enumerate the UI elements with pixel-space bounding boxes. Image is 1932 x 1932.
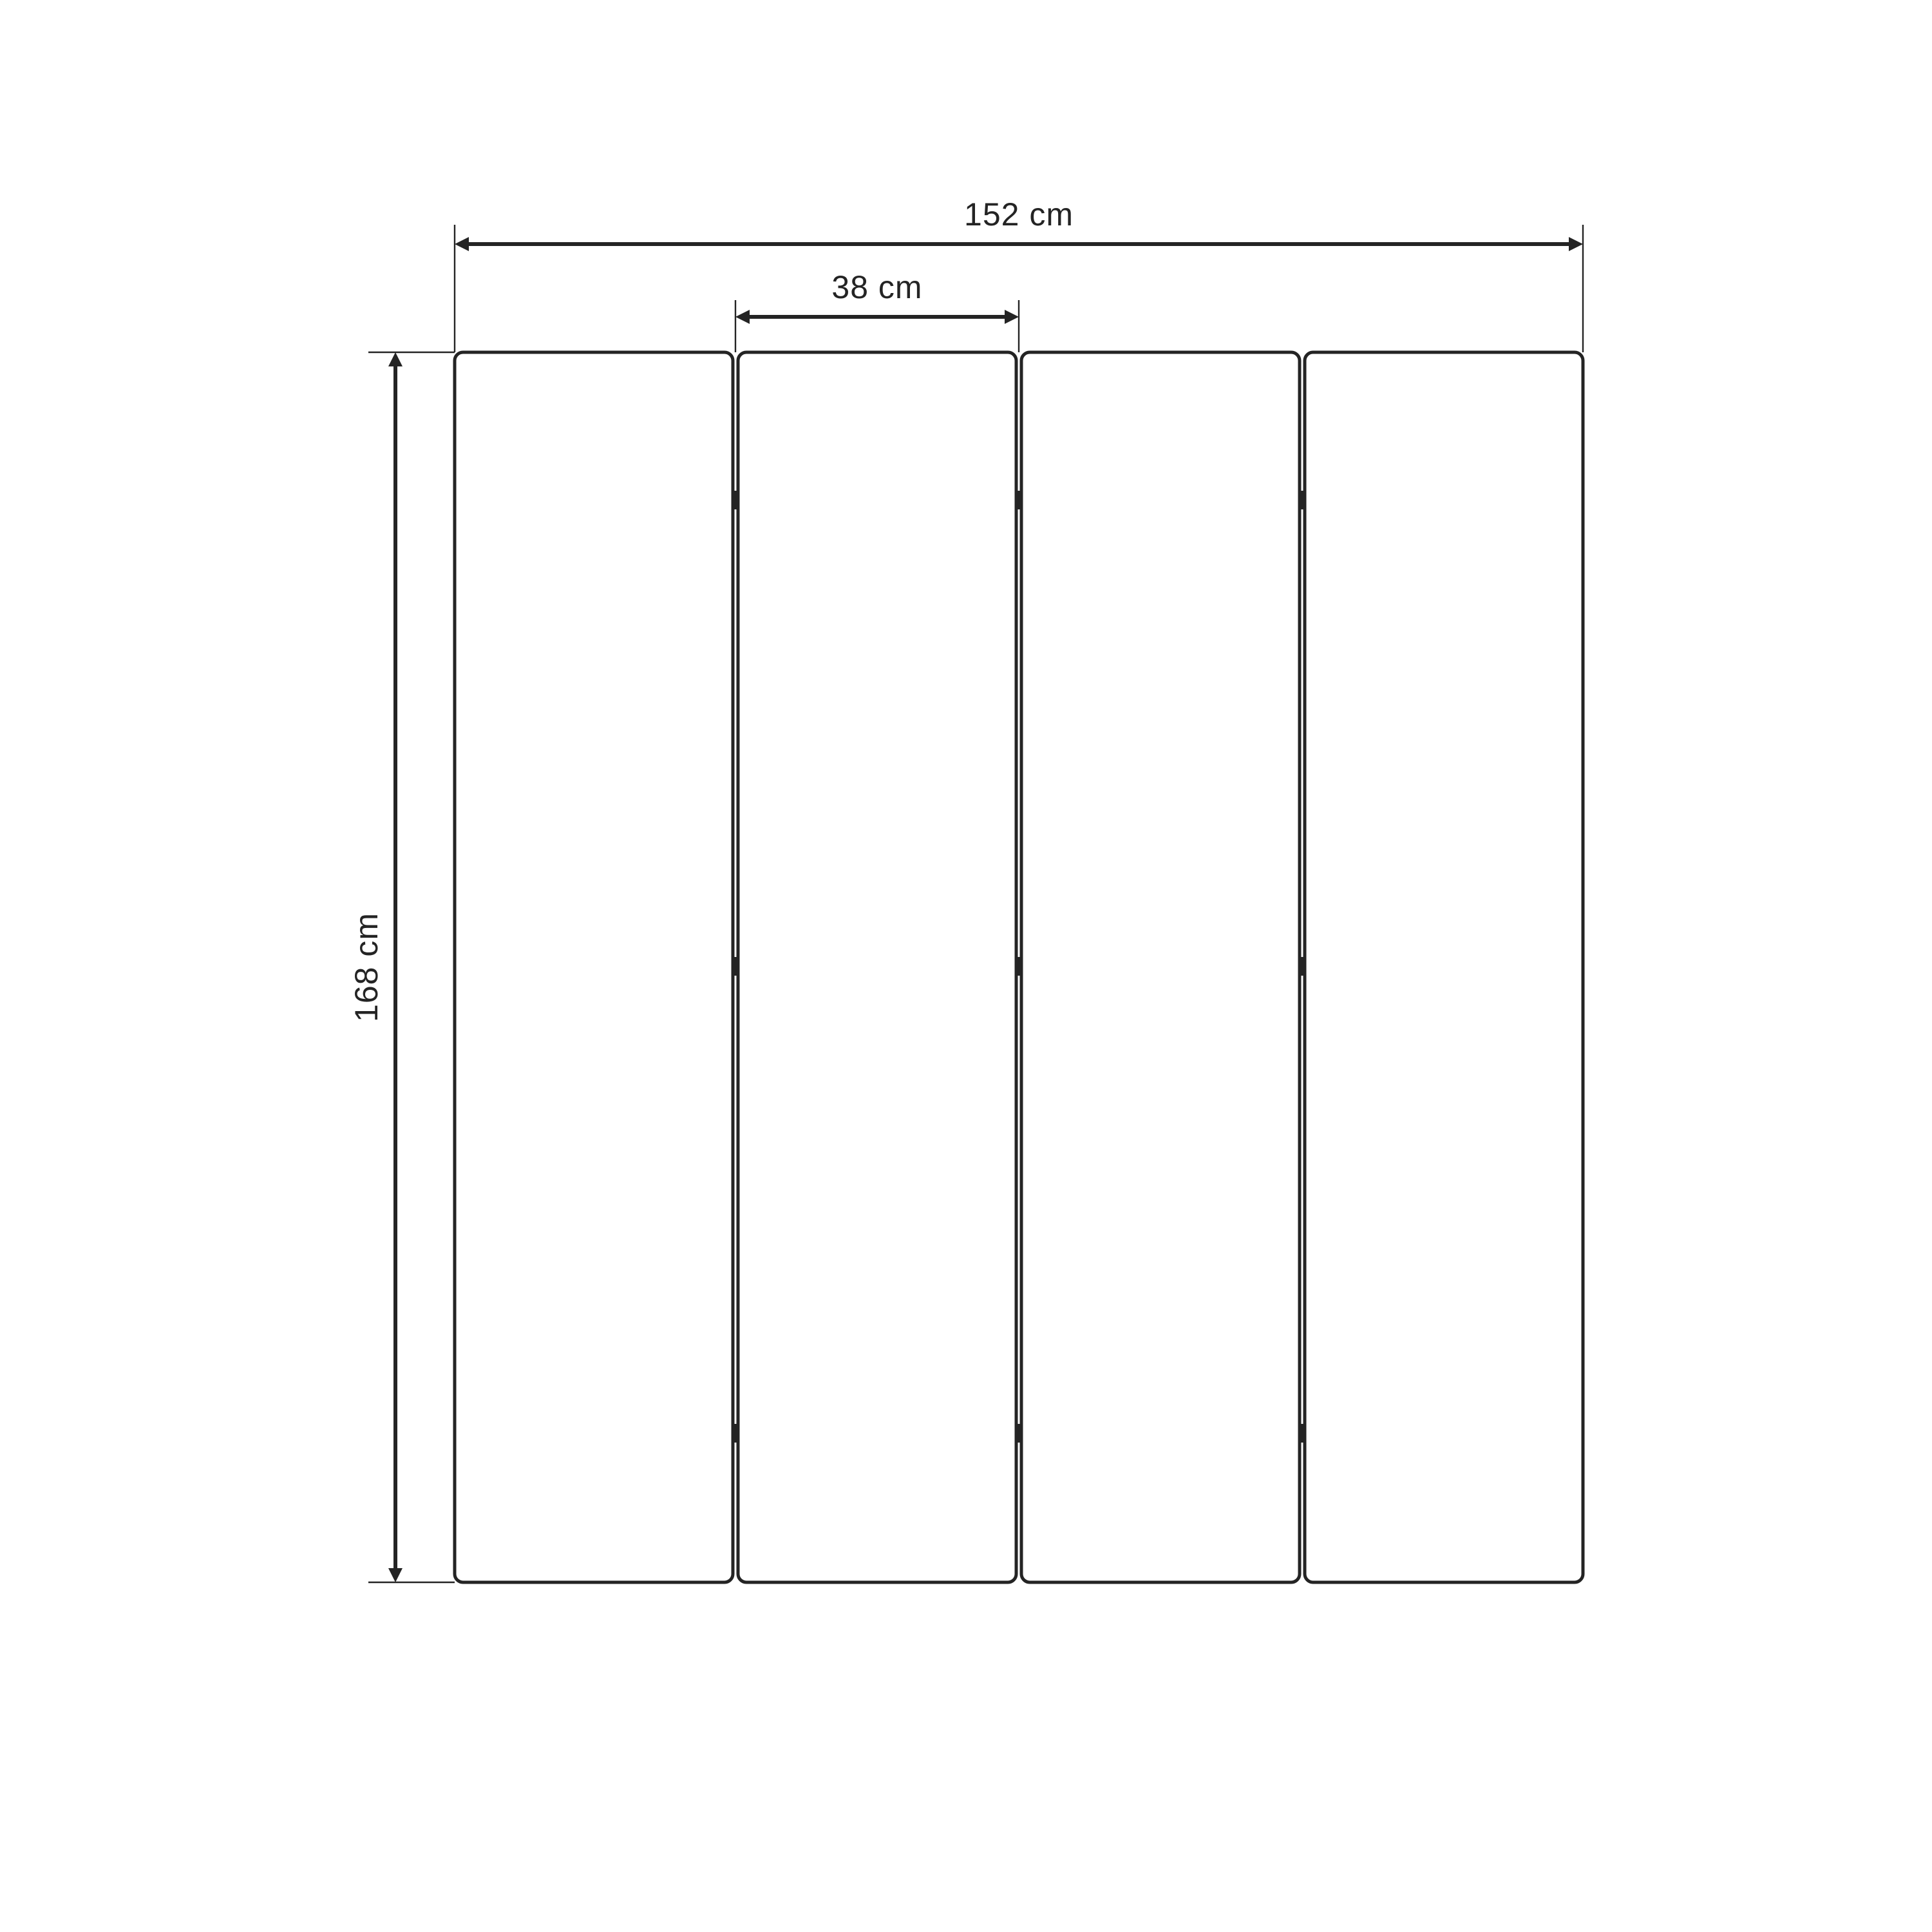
hinge-mark [732, 1424, 740, 1443]
hinge-mark [1015, 491, 1023, 509]
arrow-up-icon [388, 352, 402, 366]
height-dimension-label: 168 cm [348, 913, 384, 1022]
panel-1 [455, 352, 733, 1582]
panel-3 [1021, 352, 1300, 1582]
arrow-down-icon [388, 1568, 402, 1582]
hinge-mark [1298, 1424, 1307, 1443]
arrow-left-icon [735, 310, 750, 324]
panel-width-dimension-label: 38 cm [831, 269, 922, 305]
panel-width-dimension: 38 cm [735, 269, 1019, 352]
arrow-left-icon [455, 237, 469, 251]
hinge-mark [732, 957, 740, 976]
panel-4 [1305, 352, 1583, 1582]
height-dimension: 168 cm [348, 352, 455, 1582]
hinge-mark [1298, 491, 1307, 509]
arrow-right-icon [1569, 237, 1583, 251]
folding-screen-dimension-diagram: 152 cm 38 cm 168 cm [0, 0, 1932, 1932]
hinge-mark [1015, 1424, 1023, 1443]
arrow-right-icon [1005, 310, 1019, 324]
diagram-svg: 152 cm 38 cm 168 cm [0, 0, 1932, 1932]
total-width-dimension-label: 152 cm [964, 196, 1074, 232]
hinge-mark [732, 491, 740, 509]
hinge-mark [1298, 957, 1307, 976]
panel-2 [738, 352, 1016, 1582]
hinge-mark [1015, 957, 1023, 976]
